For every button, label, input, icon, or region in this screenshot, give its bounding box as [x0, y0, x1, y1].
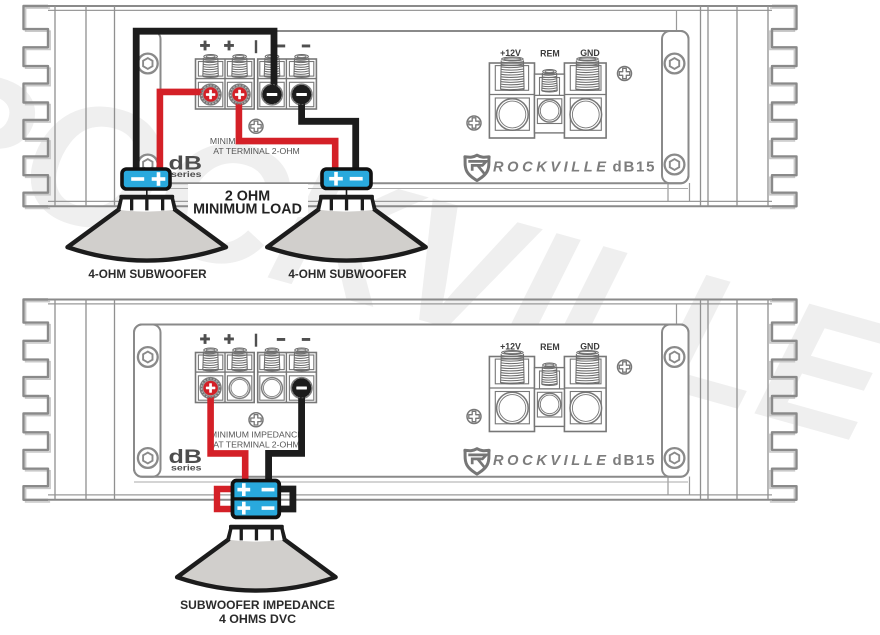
svg-text:4-OHM SUBWOOFER: 4-OHM SUBWOOFER	[88, 268, 207, 281]
svg-text:SUBWOOFER IMPEDANCE: SUBWOOFER IMPEDANCE	[180, 598, 335, 612]
svg-text:MINIMUM LOAD: MINIMUM LOAD	[193, 202, 302, 218]
svg-text:4-OHM SUBWOOFER: 4-OHM SUBWOOFER	[288, 268, 407, 281]
svg-text:4 OHMS DVC: 4 OHMS DVC	[219, 612, 296, 626]
